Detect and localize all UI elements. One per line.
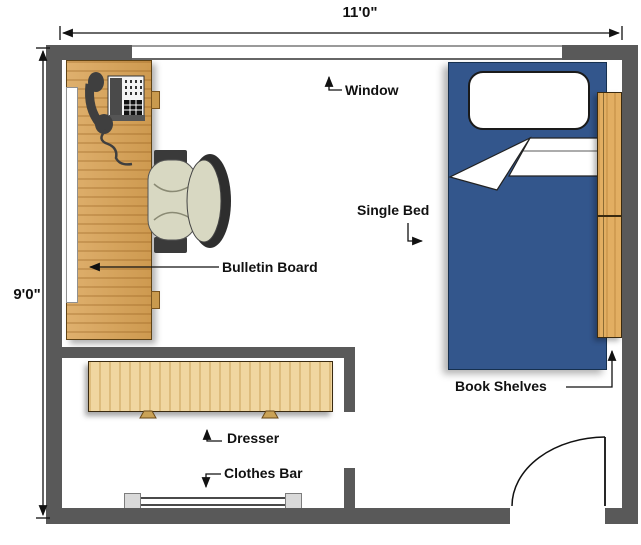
window — [132, 45, 562, 60]
dimension-label-width: 11'0" — [318, 4, 402, 21]
chair-backrest-cushion — [187, 160, 221, 242]
label-dresser: Dresser — [227, 430, 279, 446]
label-book-shelves: Book Shelves — [455, 378, 547, 394]
wall-left — [46, 45, 62, 524]
chair-armrest-bottom — [154, 237, 187, 253]
bulletin-board — [66, 87, 78, 303]
pillow — [468, 71, 590, 130]
chair-seat-contour — [154, 212, 190, 220]
dimension-label-height: 9'0" — [6, 286, 48, 303]
chair-back-link — [184, 192, 206, 212]
label-window: Window — [345, 82, 399, 98]
desk-handle-top — [151, 91, 160, 109]
office-chair — [140, 140, 240, 260]
label-clothes-bar: Clothes Bar — [224, 465, 303, 481]
shelf-divider — [598, 215, 621, 217]
chair-armrest-top — [154, 150, 187, 166]
dresser — [88, 361, 333, 412]
chair-seat — [148, 160, 196, 240]
book-shelves — [597, 92, 622, 338]
dresser-leader-arrow — [207, 430, 222, 441]
wall-bottom-right — [605, 508, 638, 524]
label-single-bed: Single Bed — [357, 202, 429, 218]
clothes-bar — [140, 497, 286, 506]
chair-seat-contour — [154, 184, 190, 192]
wall-right — [622, 45, 638, 524]
wall-closet-top — [62, 347, 355, 358]
dresser-knob-right — [262, 411, 278, 418]
label-bulletin-board: Bulletin Board — [222, 259, 318, 275]
single-bed-leader-arrow — [408, 223, 422, 241]
floor-plan-canvas: 11'0" 9'0" Window Single Bed Bulletin Bo… — [0, 0, 641, 545]
chair-backrest-frame — [189, 154, 231, 248]
window-leader-arrow — [329, 77, 342, 90]
desk — [66, 60, 152, 340]
wall-bottom-left — [46, 508, 510, 524]
wall-closet-partition-lower — [344, 468, 355, 508]
wall-closet-partition-upper — [344, 347, 355, 412]
clothes-bar-leader-arrow — [206, 474, 221, 487]
desk-handle-bottom — [151, 291, 160, 309]
door-swing-arc — [512, 437, 605, 506]
dimension-line-top — [60, 26, 622, 40]
dresser-knob-left — [140, 411, 156, 418]
